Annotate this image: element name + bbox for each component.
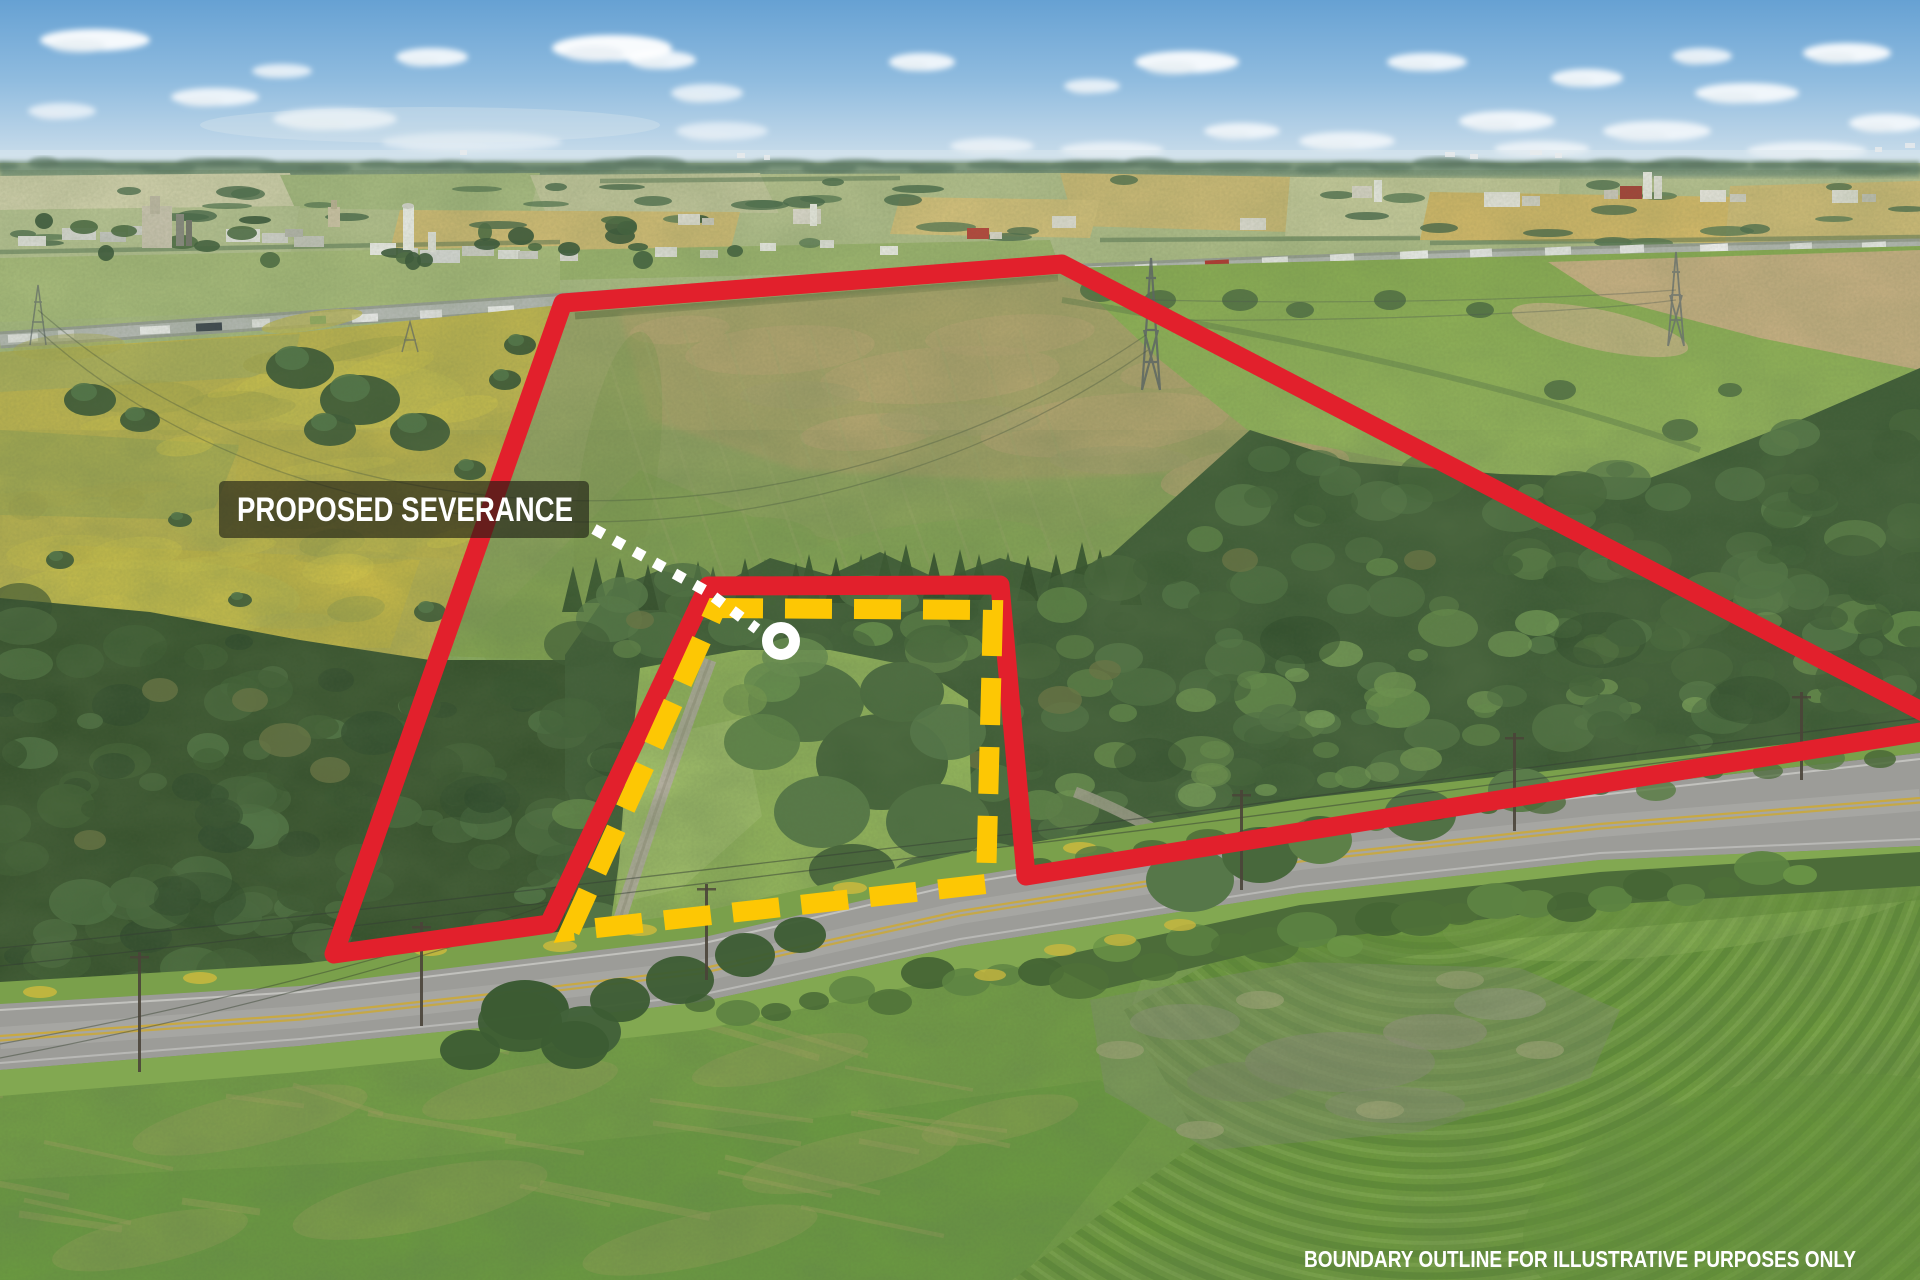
svg-text:PROPOSED SEVERANCE: PROPOSED SEVERANCE <box>237 491 573 529</box>
svg-text:BOUNDARY OUTLINE FOR ILLUSTRAT: BOUNDARY OUTLINE FOR ILLUSTRATIVE PURPOS… <box>1304 1246 1856 1272</box>
